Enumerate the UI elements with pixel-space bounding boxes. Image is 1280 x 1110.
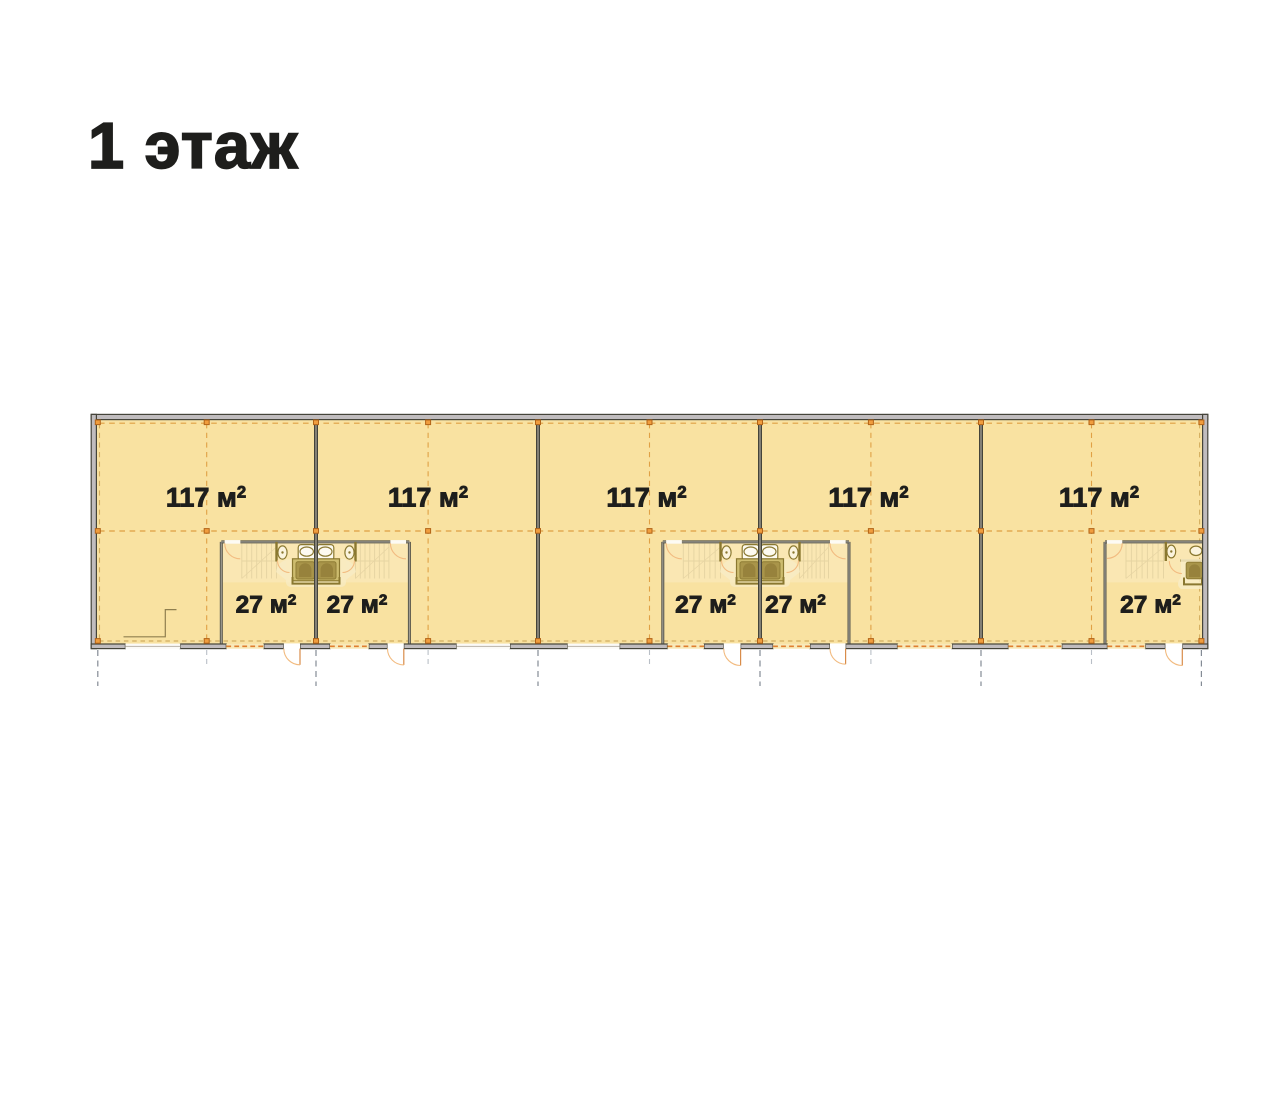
svg-text:1 этаж: 1 этаж xyxy=(88,109,299,182)
svg-text:27 м2: 27 м2 xyxy=(236,591,297,618)
svg-text:117 м2: 117 м2 xyxy=(606,483,686,513)
svg-text:117 м2: 117 м2 xyxy=(388,483,468,513)
svg-text:117 м2: 117 м2 xyxy=(828,483,908,513)
svg-text:117 м2: 117 м2 xyxy=(1059,483,1139,513)
svg-text:27 м2: 27 м2 xyxy=(765,591,826,618)
svg-text:27 м2: 27 м2 xyxy=(327,591,388,618)
svg-text:27 м2: 27 м2 xyxy=(1120,591,1181,618)
svg-text:117 м2: 117 м2 xyxy=(166,483,246,513)
svg-text:27 м2: 27 м2 xyxy=(675,591,736,618)
